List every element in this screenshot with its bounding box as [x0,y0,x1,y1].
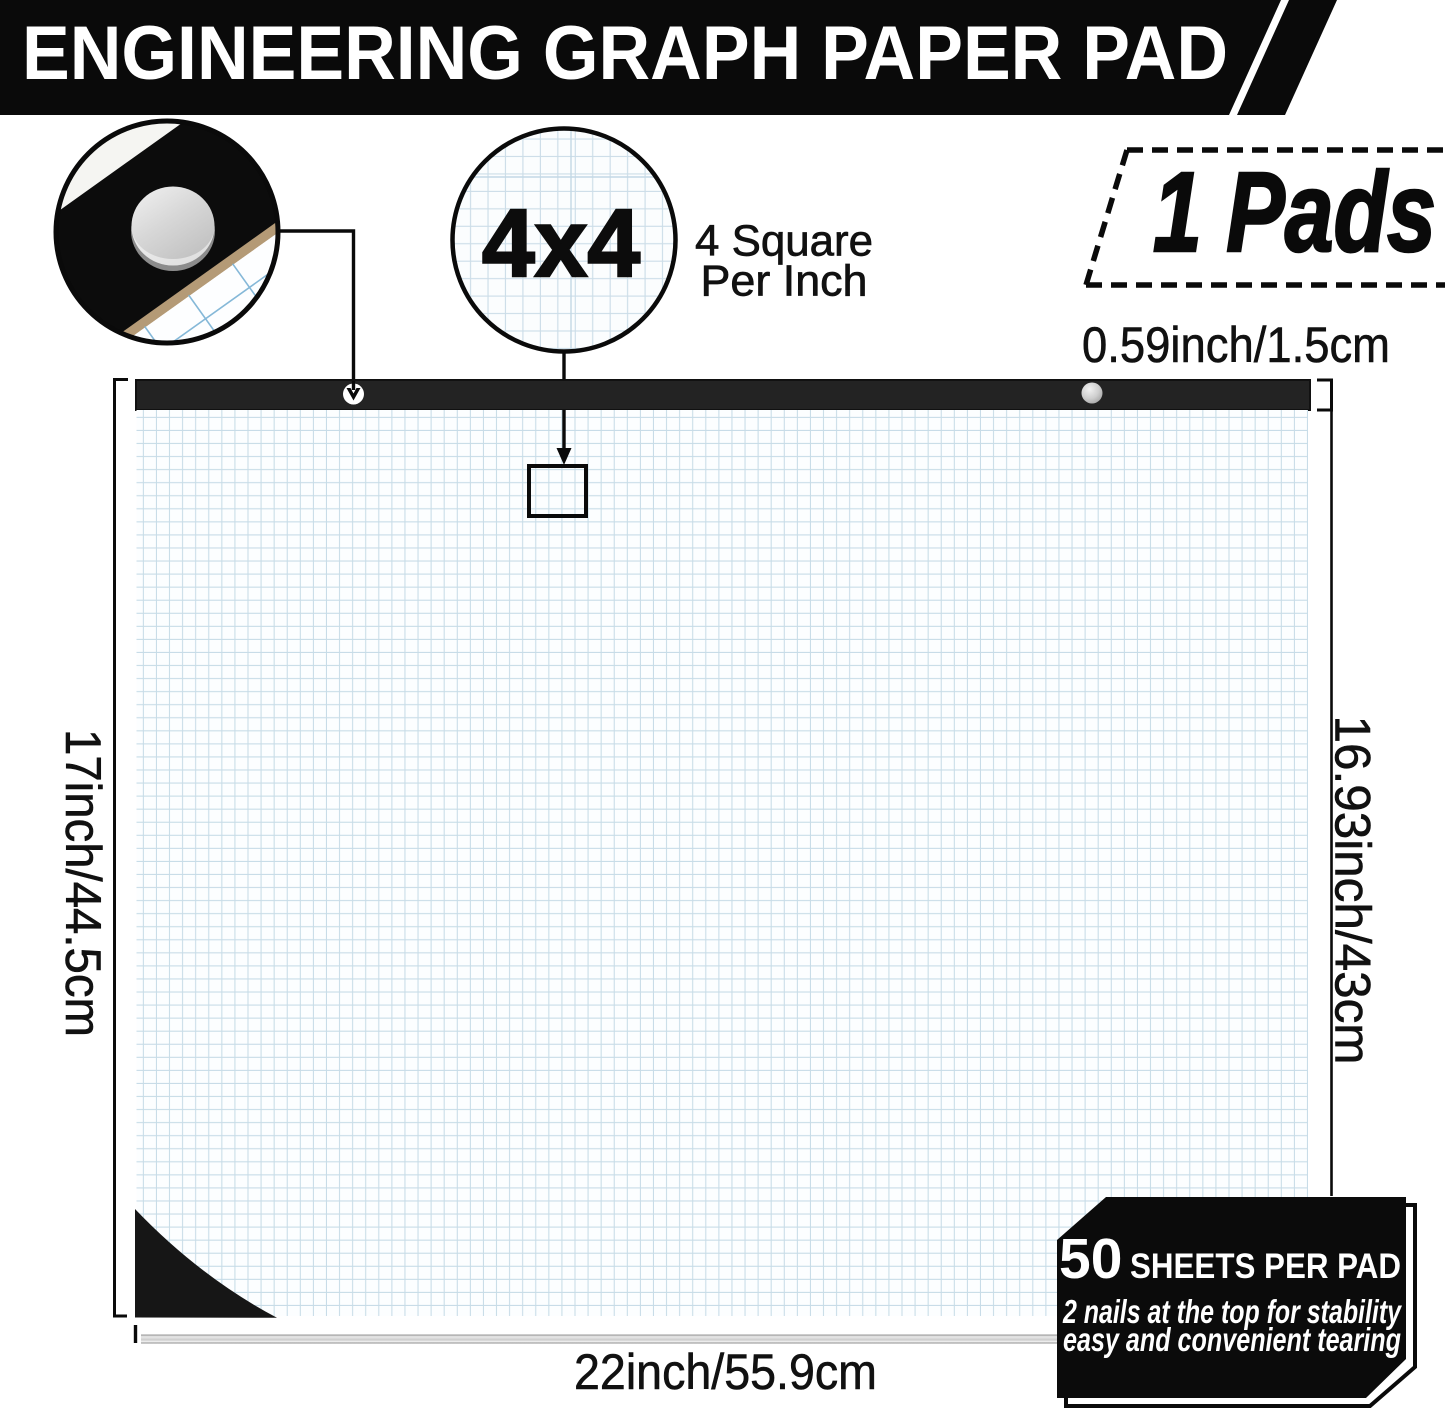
svg-text:Per Inch: Per Inch [701,257,868,306]
svg-text:50: 50 [1059,1227,1122,1291]
svg-text:1 Pads: 1 Pads [1153,149,1436,275]
svg-text:16.93inch/43cm: 16.93inch/43cm [1325,716,1381,1065]
svg-text:SHEETS PER PAD: SHEETS PER PAD [1130,1247,1401,1286]
svg-text:ENGINEERING GRAPH PAPER PAD: ENGINEERING GRAPH PAPER PAD [22,11,1228,96]
svg-text:4x4: 4x4 [482,190,640,297]
svg-text:easy and convenient tearing: easy and convenient tearing [1063,1321,1401,1358]
svg-text:22inch/55.9cm: 22inch/55.9cm [574,1344,877,1400]
svg-text:17inch/44.5cm: 17inch/44.5cm [55,729,111,1037]
svg-text:0.59inch/1.5cm: 0.59inch/1.5cm [1082,317,1390,373]
